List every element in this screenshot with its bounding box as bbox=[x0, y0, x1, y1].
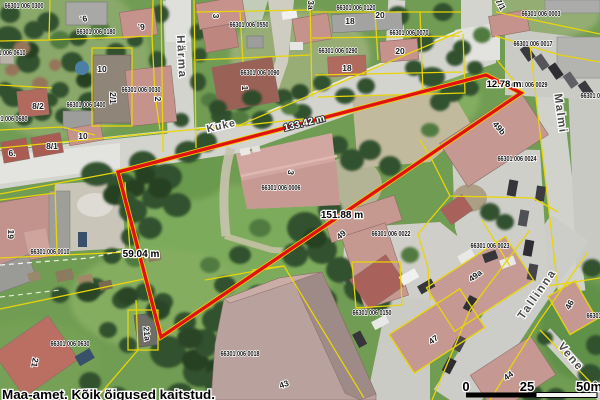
svg-text:66301 006 0150: 66301 006 0150 bbox=[353, 310, 392, 317]
svg-text:8/2: 8/2 bbox=[32, 101, 44, 111]
svg-text:18: 18 bbox=[342, 63, 352, 73]
svg-text:66301 006 0026: 66301 006 0026 bbox=[581, 93, 600, 100]
svg-text:2: 2 bbox=[153, 97, 163, 102]
svg-text:66301 006 0010: 66301 006 0010 bbox=[31, 249, 70, 256]
svg-text:66301 006 0024: 66301 006 0024 bbox=[498, 156, 537, 163]
svg-text:66301 006 0400: 66301 006 0400 bbox=[67, 102, 106, 109]
svg-text:25: 25 bbox=[520, 379, 534, 394]
svg-text:12.78 m: 12.78 m bbox=[487, 79, 522, 90]
svg-text:66301 006 0023: 66301 006 0023 bbox=[471, 243, 510, 250]
svg-text:66301 006 0610: 66301 006 0610 bbox=[0, 50, 26, 57]
svg-text:66301 006 0020: 66301 006 0020 bbox=[587, 313, 600, 320]
svg-text:50m: 50m bbox=[576, 379, 600, 394]
svg-text:66301 006 0550: 66301 006 0550 bbox=[230, 22, 269, 29]
svg-text:66301 006 0300: 66301 006 0300 bbox=[5, 3, 44, 10]
svg-text:21a: 21a bbox=[141, 326, 152, 341]
svg-text:6.: 6. bbox=[8, 148, 15, 158]
svg-text:151.88 m: 151.88 m bbox=[321, 210, 363, 221]
svg-text:59.04 m: 59.04 m bbox=[123, 249, 160, 260]
svg-text:66301 006 0030: 66301 006 0030 bbox=[122, 87, 161, 94]
svg-text:2/1: 2/1 bbox=[108, 92, 118, 104]
svg-text:66301 006 0003: 66301 006 0003 bbox=[522, 11, 561, 18]
svg-text:66301 006 0120: 66301 006 0120 bbox=[337, 5, 376, 12]
svg-text:18: 18 bbox=[345, 16, 355, 26]
svg-text:66301 006 0022: 66301 006 0022 bbox=[372, 231, 411, 238]
svg-text:66301 006 0290: 66301 006 0290 bbox=[319, 48, 358, 55]
svg-text:10: 10 bbox=[97, 64, 107, 74]
svg-text:66301 006 0090: 66301 006 0090 bbox=[241, 70, 280, 77]
svg-text:Härma: Härma bbox=[174, 35, 188, 79]
svg-text:66301 006 0680: 66301 006 0680 bbox=[0, 116, 28, 123]
svg-text:Maa-amet. Kõik õigused kaitstu: Maa-amet. Kõik õigused kaitstud. bbox=[2, 388, 215, 400]
svg-text:66301 006 0006: 66301 006 0006 bbox=[262, 185, 301, 192]
svg-text:19: 19 bbox=[6, 229, 17, 240]
svg-text:8/1: 8/1 bbox=[46, 141, 58, 151]
svg-text:66301 006 0017: 66301 006 0017 bbox=[514, 41, 553, 48]
svg-text:3a: 3a bbox=[306, 0, 316, 10]
svg-text:21: 21 bbox=[29, 357, 41, 368]
svg-text:10: 10 bbox=[78, 131, 88, 141]
svg-text:3: 3 bbox=[211, 14, 221, 19]
svg-text:66301 006 0018: 66301 006 0018 bbox=[221, 351, 260, 358]
svg-text:20: 20 bbox=[375, 10, 385, 20]
svg-text:20: 20 bbox=[395, 46, 405, 56]
svg-text:66301 006 0070: 66301 006 0070 bbox=[390, 30, 429, 37]
svg-text:0: 0 bbox=[462, 379, 469, 394]
svg-text:66301 006 0180: 66301 006 0180 bbox=[77, 29, 116, 36]
svg-text:1: 1 bbox=[240, 86, 250, 91]
svg-text:6.: 6. bbox=[137, 22, 145, 33]
svg-text:66301 006 0630: 66301 006 0630 bbox=[51, 341, 90, 348]
